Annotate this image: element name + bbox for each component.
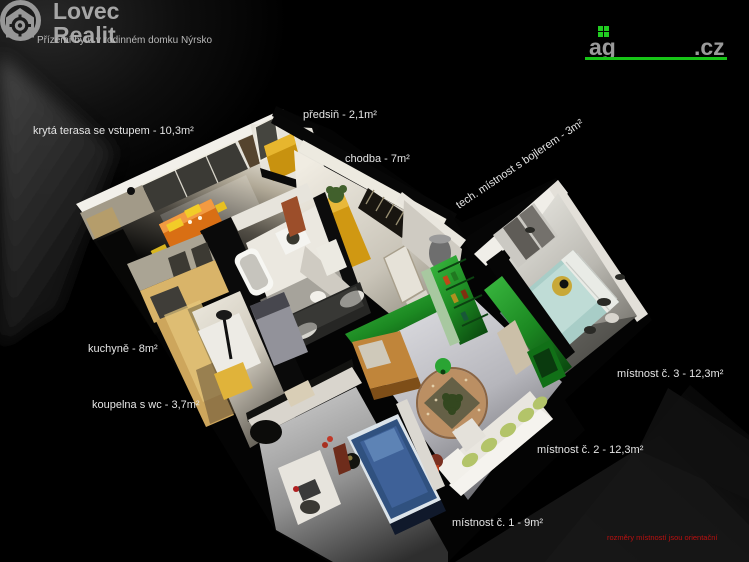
svg-text:místnost č. 1 - 9m²: místnost č. 1 - 9m²	[452, 517, 543, 529]
svg-text:kuchyně - 8m²: kuchyně - 8m²	[88, 343, 158, 355]
svg-text:chodba - 7m²: chodba - 7m²	[345, 153, 410, 165]
svg-text:Lovec: Lovec	[53, 0, 120, 24]
svg-text:místnost č. 2 - 12,3m²: místnost č. 2 - 12,3m²	[537, 444, 644, 456]
svg-text:Přízemí bytu v rodinném domku: Přízemí bytu v rodinném domku Nýrsko	[37, 35, 212, 46]
svg-text:.cz: .cz	[694, 34, 725, 60]
svg-text:místnost č. 3 - 12,3m²: místnost č. 3 - 12,3m²	[617, 368, 724, 380]
svg-text:koupelna s wc - 3,7m²: koupelna s wc - 3,7m²	[92, 399, 200, 411]
svg-text:krytá terasa se vstupem - 10,3: krytá terasa se vstupem - 10,3m²	[33, 125, 194, 137]
svg-text:předsiň - 2,1m²: předsiň - 2,1m²	[303, 109, 377, 121]
svg-text:rozměry místností jsou orienta: rozměry místností jsou orientační	[607, 533, 718, 542]
svg-text:ag: ag	[589, 34, 616, 60]
